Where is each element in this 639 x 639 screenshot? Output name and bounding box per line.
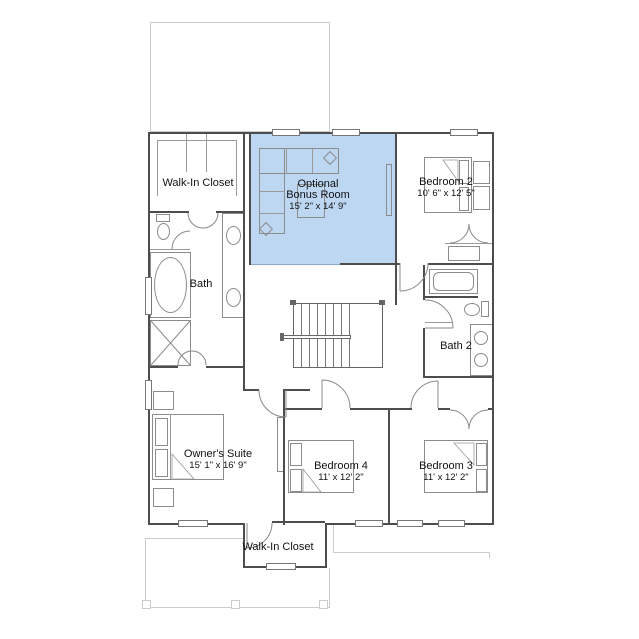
wall-segment xyxy=(492,132,494,525)
sink xyxy=(474,353,488,367)
room-dimensions: 11' x 12' 2" xyxy=(314,472,368,483)
sofa-cushion-line xyxy=(260,191,284,192)
closet-shelf xyxy=(473,161,490,184)
wall-segment xyxy=(285,408,322,410)
toilet xyxy=(481,301,489,317)
window xyxy=(438,520,465,527)
wall-segment xyxy=(285,389,310,391)
window xyxy=(272,129,300,136)
room-dimensions: 10' 6" x 12' 5" xyxy=(417,188,474,199)
wall-segment xyxy=(423,328,425,378)
room-name: Bath xyxy=(190,279,213,290)
wall-segment xyxy=(425,296,478,298)
room-name: Owner's Suite xyxy=(184,449,252,460)
bathtub xyxy=(154,257,187,313)
wall-segment xyxy=(243,389,259,391)
bathtub xyxy=(433,272,474,291)
wall-segment xyxy=(148,211,189,213)
wall-segment xyxy=(395,265,397,305)
bed-headboard-line xyxy=(170,415,171,479)
porch-outline xyxy=(145,538,146,608)
room-name: Walk-In Closet xyxy=(162,178,233,189)
porch-outline xyxy=(145,538,244,539)
wall-segment xyxy=(243,366,245,391)
room-label-bath: Bath xyxy=(190,279,213,290)
window xyxy=(145,277,152,315)
toilet xyxy=(156,214,170,222)
wall-segment xyxy=(340,263,397,265)
room-name: Bonus Room xyxy=(286,190,350,201)
wall-segment xyxy=(148,366,178,368)
shower xyxy=(150,320,191,366)
room-label-walk-in-closet-upper: Walk-In Closet xyxy=(162,178,233,189)
room-name: Bedroom 2 xyxy=(417,177,474,188)
window xyxy=(397,520,423,527)
bath2-partition xyxy=(425,322,453,323)
stair-newel xyxy=(290,300,296,305)
toilet xyxy=(464,303,480,316)
wall-segment xyxy=(249,132,251,265)
window xyxy=(332,129,360,136)
tv-console xyxy=(386,164,392,216)
pillow xyxy=(290,469,302,492)
wall-segment xyxy=(243,132,245,368)
window xyxy=(450,129,478,136)
room-label-owners-suite: Owner's Suite 15' 1" x 16' 9" xyxy=(184,449,252,471)
nightstand xyxy=(153,391,174,410)
room-name: Bedroom 3 xyxy=(419,461,473,472)
wall-segment xyxy=(216,211,245,213)
room-name: Bedroom 4 xyxy=(314,461,368,472)
porch-post xyxy=(142,600,151,609)
nightstand xyxy=(153,488,174,507)
linen-shelf xyxy=(448,246,480,261)
window xyxy=(145,380,152,410)
wall-segment xyxy=(148,132,494,134)
window xyxy=(266,563,296,570)
porch-outline xyxy=(329,568,330,607)
closet-shelf xyxy=(473,186,490,210)
step-outline xyxy=(489,552,490,558)
stair-newel xyxy=(379,300,385,305)
step-outline xyxy=(333,552,490,553)
closet-rod xyxy=(157,140,158,196)
wall-segment xyxy=(488,408,494,410)
porch-post xyxy=(319,600,328,609)
room-label-bedroom-4: Bedroom 4 11' x 12' 2" xyxy=(314,461,368,483)
room-dimensions: 15' 2" x 14' 9" xyxy=(286,201,350,212)
step-outline xyxy=(333,525,334,553)
room-label-bonus-room: Optional Bonus Room 15' 2" x 14' 9" xyxy=(286,179,350,212)
stair-rail xyxy=(283,335,351,339)
wall-segment xyxy=(350,408,412,410)
sofa-cushion-line xyxy=(286,149,287,173)
roof-outline-upper xyxy=(150,22,330,132)
wall-segment xyxy=(423,265,425,300)
room-name: Walk-In Closet xyxy=(242,542,313,553)
wall-segment xyxy=(423,376,494,378)
room-label-bedroom-3: Bedroom 3 11' x 12' 2" xyxy=(419,461,473,483)
window xyxy=(178,520,208,527)
room-name: Bath 2 xyxy=(440,341,472,352)
room-dimensions: 15' 1" x 16' 9" xyxy=(184,460,252,471)
room-label-bedroom-2: Bedroom 2 10' 6" x 12' 5" xyxy=(417,177,474,199)
room-label-walk-in-closet-lower: Walk-In Closet xyxy=(242,542,313,553)
closet-rod xyxy=(206,132,207,172)
sofa-cushion-line xyxy=(312,149,313,173)
room-label-bath-2: Bath 2 xyxy=(440,341,472,352)
wall-segment xyxy=(388,408,390,525)
pillow xyxy=(476,443,487,466)
window xyxy=(355,520,383,527)
closet-partition xyxy=(445,243,494,244)
wall-segment xyxy=(438,408,450,410)
room-dimensions: 11' x 12' 2" xyxy=(419,472,473,483)
sink xyxy=(226,288,241,307)
pillow xyxy=(290,443,302,466)
wall-segment xyxy=(325,523,327,568)
wall-segment xyxy=(148,132,150,525)
wall-segment xyxy=(206,366,245,368)
closet-rod xyxy=(157,140,237,141)
wall-segment xyxy=(272,521,325,523)
pillow xyxy=(476,469,487,492)
pillow xyxy=(155,418,168,446)
sink xyxy=(474,331,488,345)
pillow xyxy=(155,449,168,477)
wall-segment xyxy=(395,132,397,265)
water-closet-partition xyxy=(150,249,190,250)
wall-segment xyxy=(428,263,494,265)
sofa-cushion-line xyxy=(260,213,284,214)
closet-rod xyxy=(236,140,237,196)
toilet xyxy=(157,223,170,240)
floorplan-canvas: Walk-In Closet Optional Bonus Room 15' 2… xyxy=(0,0,639,639)
sink xyxy=(226,226,241,245)
porch-post xyxy=(231,600,240,609)
closet-rod xyxy=(186,132,187,172)
